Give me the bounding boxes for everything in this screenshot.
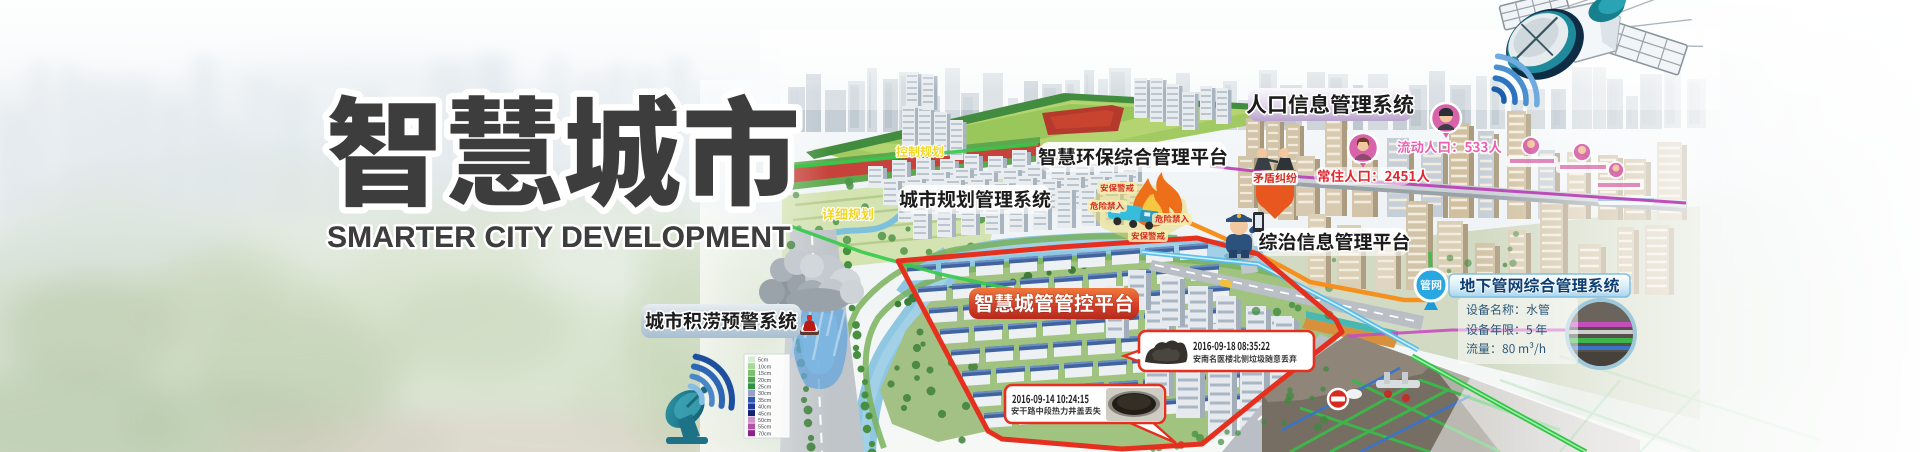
svg-text:45cm: 45cm [758, 411, 772, 417]
svg-text:10cm: 10cm [758, 364, 772, 370]
svg-text:50cm: 50cm [758, 418, 772, 424]
svg-text:25cm: 25cm [758, 385, 772, 391]
svg-text:30cm: 30cm [758, 391, 772, 397]
svg-text:40cm: 40cm [758, 405, 772, 411]
svg-text:SMARTER CITY DEVELOPMENT: SMARTER CITY DEVELOPMENT [327, 221, 791, 254]
svg-text:35cm: 35cm [758, 398, 772, 404]
svg-text:70cm: 70cm [758, 431, 772, 437]
svg-text:15cm: 15cm [758, 371, 772, 377]
svg-text:55cm: 55cm [758, 425, 772, 431]
svg-text:20cm: 20cm [758, 378, 772, 384]
svg-text:5cm: 5cm [758, 358, 769, 364]
